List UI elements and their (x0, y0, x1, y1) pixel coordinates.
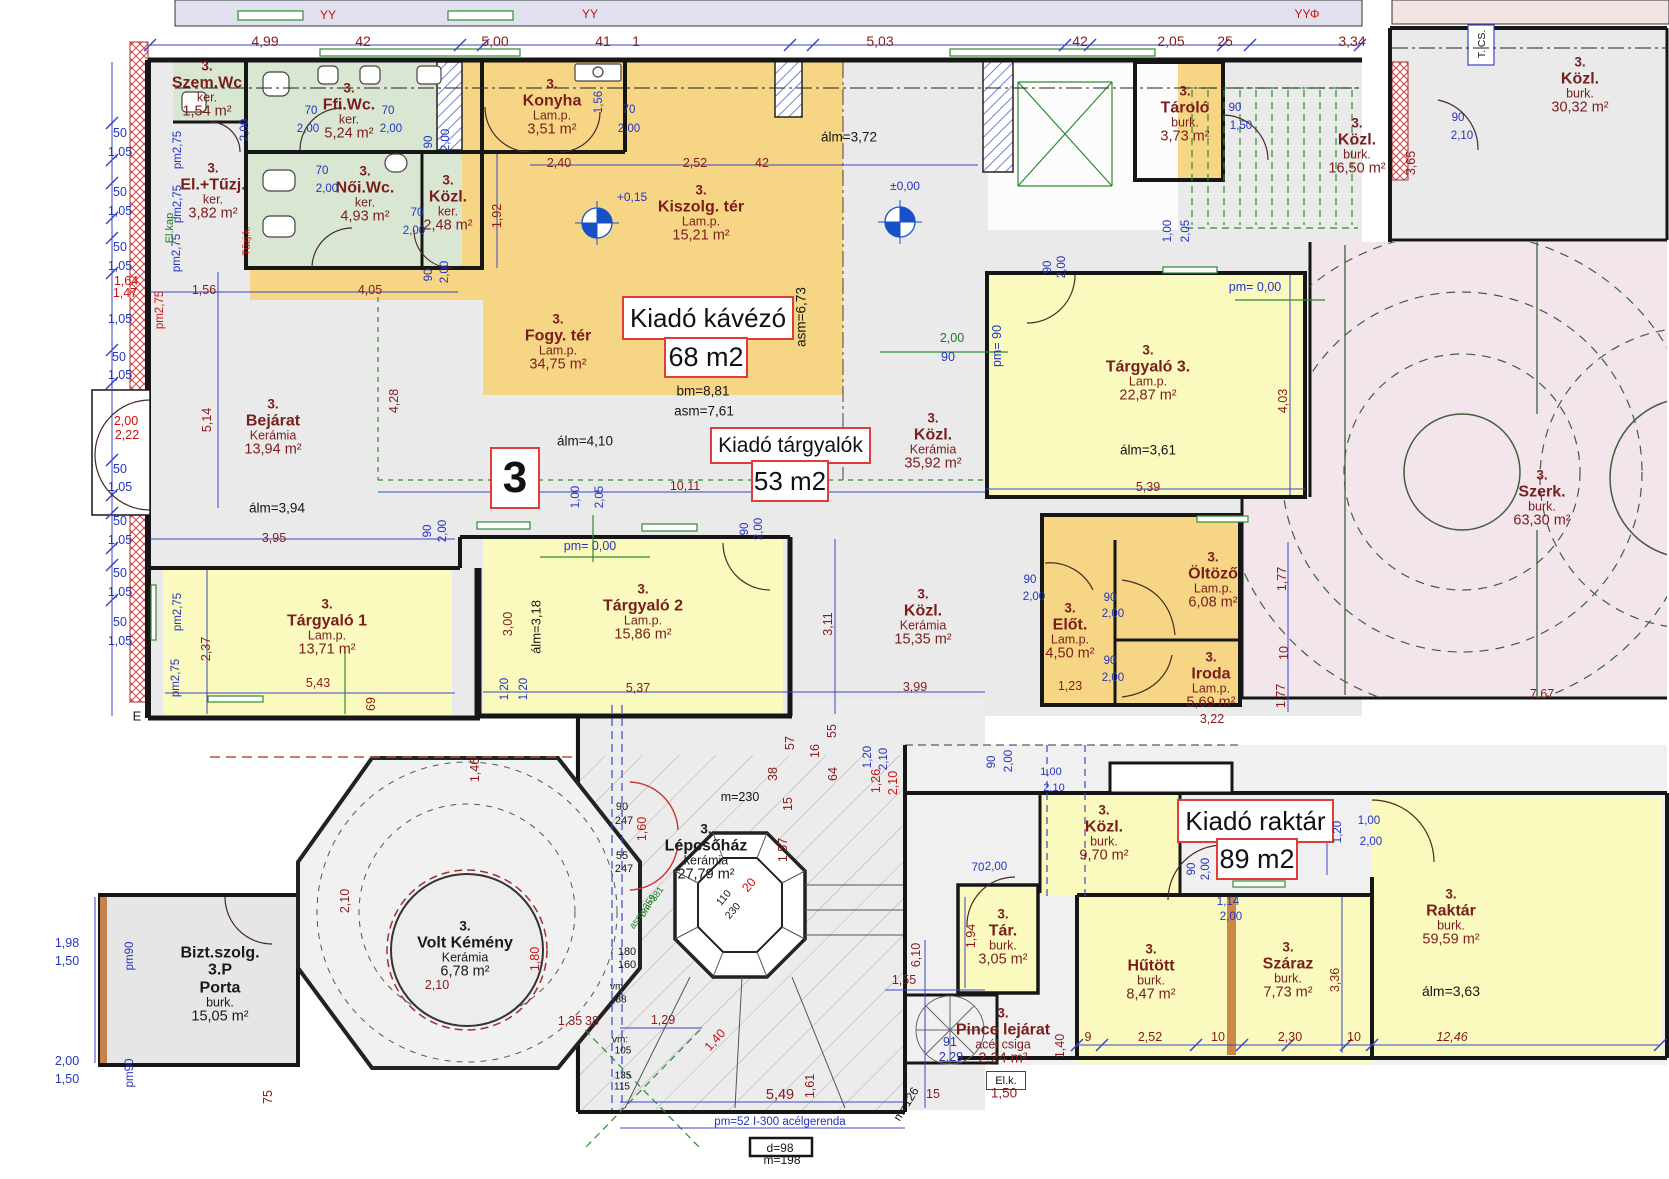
dim-label: 50 (113, 514, 127, 528)
dim-label: 50 (113, 240, 127, 254)
dim-label: 1,20 (862, 746, 874, 768)
room-label-kozl-1650: 3.Közl.burk.16,50 m² (1328, 117, 1385, 178)
dim-label: 2,00 (239, 119, 251, 141)
dim-label: 1,23 (1058, 679, 1082, 693)
room-label-szem-wc: 3.Szem.Wcker.1,54 m² (172, 60, 242, 121)
dim-label: 90 (986, 756, 998, 769)
dim-label: 2,05 (594, 486, 606, 508)
dim-label: 1,14 (1217, 896, 1239, 908)
dim-label: 2,52 (1138, 1030, 1162, 1044)
dim-label: +0,15 (617, 190, 647, 204)
dim-label: 6,10 (909, 943, 923, 967)
dim-label: 38 (585, 1014, 599, 1028)
dim-label: 90 (1024, 574, 1037, 586)
dim-label: 41 (595, 33, 611, 49)
room-label-szerk: 3.Szerk.burk.63,30 m² (1513, 469, 1570, 530)
dim-label: 3,11 (821, 612, 835, 635)
dim-label: El.kap (164, 213, 176, 244)
dim-label: 5,39 (1136, 480, 1160, 494)
dim-label: 3,36 (1328, 968, 1342, 992)
dim-label: álm=3,18 (529, 600, 544, 654)
room-label-hutott: 3.Hűtöttburk.8,47 m² (1126, 943, 1175, 1004)
dim-label: 2,00 (1220, 911, 1242, 923)
dim-label: 90 (739, 523, 751, 536)
dim-label: 4,03 (1276, 389, 1290, 413)
dim-label: pm=52 I-300 acélgerenda (714, 1116, 845, 1128)
dim-label: ±0,00 (890, 179, 920, 193)
dim-label: 1,35 (558, 1014, 582, 1028)
dim-label: 2,00 (1200, 858, 1212, 880)
dim-label: m=230 (721, 790, 760, 804)
dim-label: 4,28 (387, 389, 401, 413)
room-label-kozl-1535: 3.Közl.Kerámia15,35 m² (894, 588, 951, 649)
dim-label: 2,05 (1157, 33, 1184, 49)
dim-label: E (133, 709, 142, 724)
dim-label: 2,00 (1023, 591, 1045, 603)
dim-label: 1,61 (803, 1074, 817, 1098)
dim-label: 1,55 (892, 973, 916, 987)
dim-label: asm=6,73 (794, 287, 809, 347)
dim-label: 16 (808, 744, 822, 758)
dim-label: 70 (623, 104, 636, 116)
dim-label: 1,05 (108, 204, 132, 218)
dim-label: bm=8,81 (677, 384, 730, 399)
dim-label: 50 (113, 615, 127, 629)
room-label-targyalo-1: 3.Tárgyaló 1Lam.p.13,71 m² (287, 598, 367, 659)
dim-label: 2,40 (547, 156, 571, 170)
room-label-kozl-3032: 3.Közl.burk.30,32 m² (1551, 56, 1608, 117)
dim-label: álm=3,72 (821, 130, 877, 145)
dim-label: asm=359 (627, 893, 659, 932)
dim-label: ΥΥΦ (1295, 7, 1320, 21)
dim-label: 9 (1085, 1030, 1092, 1044)
dim-label: 1,00 (1162, 220, 1174, 242)
dim-label: 5,00 (481, 33, 508, 49)
dim-label: álm=3,94 (249, 501, 305, 516)
dim-label: 55 (616, 850, 628, 862)
dim-label: 1,46 (468, 758, 482, 782)
dim-label: álm=4,10 (557, 434, 613, 449)
room-label-bejarat: 3.BejáratKerámia13,94 m² (244, 398, 301, 459)
dim-label: 1,29 (651, 1013, 675, 1027)
room-label-raktar: 3.Raktárburk.59,59 m² (1422, 888, 1479, 949)
dim-label: 1,77 (1274, 684, 1288, 708)
dim-label: 25 (1217, 33, 1233, 49)
dim-label: 2,30 (1278, 1030, 1302, 1044)
dim-label: 2,00 (440, 129, 452, 151)
dim-label: 5,37 (626, 681, 650, 695)
dim-label: 75 (261, 1090, 275, 1104)
dim-label: 115 (614, 1082, 630, 1093)
dim-label: 90 (1042, 261, 1054, 274)
dim-label: asm=7,61 (674, 404, 734, 419)
dim-label: pm= 0,00 (564, 539, 616, 553)
dim-label: 42 (355, 33, 371, 49)
dim-label: 50 (112, 350, 126, 364)
dim-label: 2,10 (1043, 782, 1064, 794)
dim-label: 2,29 (939, 1050, 963, 1064)
dim-label: pm2,75 (172, 131, 184, 169)
dim-label: 2,00 (380, 123, 402, 135)
dim-label: 2,10 (1451, 130, 1473, 142)
room-label-porta: Bizt.szolg.3.PPortaburk.15,05 m² (180, 945, 259, 1026)
highlight-raktar-area: 89 m2 (1216, 838, 1298, 880)
dim-label: 2,00 (753, 518, 765, 540)
room-label-targyalo-3: 3.Tárgyaló 3.Lam.p.22,87 m² (1106, 344, 1190, 405)
dim-label: 1,20 (1332, 821, 1344, 843)
dim-label: 1,05 (108, 634, 132, 648)
dim-label: 42 (755, 156, 769, 170)
dim-label: 1,94 (964, 924, 978, 948)
dim-label: 3,99 (903, 680, 927, 694)
dim-label: 90 (423, 136, 435, 149)
dim-label: 2,00 (618, 123, 640, 135)
room-label-lepcsohaz: 3.Lépcsőházkerámia27,79 m² (665, 823, 748, 884)
highlight-kiado-targyalok: Kiadó tárgyalók (710, 427, 871, 464)
dim-label: 2,00 (985, 861, 1007, 873)
dim-label: 2,22 (115, 428, 139, 442)
dim-label: 160 (618, 959, 636, 971)
dim-label: 50 (113, 185, 127, 199)
dim-label: 1,50 (1230, 120, 1252, 132)
dim-label: 135 (615, 1071, 632, 1082)
dim-label: pm2,75 (172, 593, 184, 631)
dim-label: pm= 0,00 (1229, 280, 1281, 294)
dim-label: 1,80 (528, 947, 542, 971)
dim-label: 2,00 (403, 225, 425, 237)
highlight-targyalok-area: 53 m2 (751, 460, 829, 502)
dim-label: 10 (1277, 646, 1291, 660)
dim-label: 90 (1104, 592, 1117, 604)
dim-label: 70 (411, 207, 424, 219)
dim-label: 3,00 (501, 612, 515, 636)
floor-plan: 3.Szem.Wcker.1,54 m²3.Ffi.Wc.ker.5,24 m²… (0, 0, 1669, 1179)
dim-label: 2,00 (1102, 608, 1124, 620)
dim-label: ΥΥ (582, 7, 598, 21)
room-label-iroda: 3.IrodaLam.p.5,69 m² (1186, 651, 1235, 712)
dim-label: 64 (826, 767, 840, 781)
dim-label: 5,14 (200, 408, 214, 432)
dim-label: 2,37 (199, 637, 213, 661)
dim-label: 1,05 (108, 312, 132, 326)
dim-label: 55 (825, 724, 839, 738)
dim-label: 2,00 (1102, 672, 1124, 684)
dim-label: 1,05 (108, 533, 132, 547)
room-label-volt-kemeny: 3.Volt KéményKerámia6,78 m² (417, 920, 513, 981)
dim-label: 42 (1072, 33, 1088, 49)
dim-label: 2,00 (297, 123, 319, 135)
dim-label: 15 (781, 797, 795, 811)
dim-label: 2,00 (439, 261, 451, 283)
dim-label: 90 (423, 269, 435, 282)
dim-label: 2,00 (1360, 836, 1382, 848)
dim-label: 2,00 (114, 414, 138, 428)
dim-label: 2,00 (1003, 750, 1015, 772)
dim-label: 90 (1229, 102, 1242, 114)
dim-label: 2,00 (55, 1054, 79, 1068)
dim-label: 50 (113, 462, 127, 476)
dim-label: 10 (1211, 1030, 1225, 1044)
dim-label: 15 (926, 1087, 940, 1101)
dim-label: vm: (612, 1035, 628, 1046)
dim-label: m=198 (763, 1153, 800, 1167)
dim-label: 4,99 (251, 33, 278, 49)
dim-label: T. CS. (1476, 30, 1488, 59)
room-label-konyha: 3.KonyhaLam.p.3,51 m² (523, 78, 582, 139)
dim-label: 5,43 (306, 676, 330, 690)
dim-label: 1,47 (113, 286, 137, 300)
dim-label: 3,22 (1200, 712, 1224, 726)
dim-label: 1,00 (570, 486, 582, 508)
dim-label: 90 (941, 350, 955, 364)
room-label-noi-wc: 3.Női.Wc.ker.4,93 m² (336, 165, 395, 226)
dim-label: 70 (382, 105, 395, 117)
dim-label: 1,00 (1358, 815, 1380, 827)
dim-label: 1,56 (192, 283, 216, 297)
dim-label: 3,65 (1404, 151, 1418, 175)
dim-label: 1,50 (991, 1086, 1017, 1101)
dim-label: vm: (610, 982, 626, 993)
dim-label: 70 (316, 165, 329, 177)
dim-label: 1,56 (593, 91, 605, 113)
room-label-targyalo-2: 3.Tárgyaló 2Lam.p.15,86 m² (603, 583, 683, 644)
dim-label: 1,50 (55, 1072, 79, 1086)
dim-label: 247 (615, 815, 633, 827)
dim-label: m=126 (890, 1085, 921, 1124)
dim-label: 1,05 (108, 368, 132, 382)
room-label-tarolo: 3.Tárolóburk.3,73 m² (1160, 85, 1209, 146)
dim-label: 1,92 (490, 204, 504, 228)
dim-label: 1,98 (55, 936, 79, 950)
plan-labels: 3.Szem.Wcker.1,54 m²3.Ffi.Wc.ker.5,24 m²… (0, 0, 1669, 1179)
dim-label: 2,05 (1180, 220, 1192, 242)
dim-label: 1,05 (108, 480, 132, 494)
dim-label: ΥΥ (320, 8, 336, 22)
dim-label: 180 (618, 946, 636, 958)
dim-label: 90 (1186, 863, 1198, 876)
dim-label: 2,52 (683, 156, 707, 170)
dim-label: 1,60 (635, 817, 649, 841)
dim-label: 70 (972, 862, 985, 874)
dim-label: 90 (616, 801, 628, 813)
dim-label: 70 (305, 105, 318, 117)
dim-label: 1,00 (1040, 766, 1061, 778)
highlight-kavezo-area: 68 m2 (664, 337, 748, 378)
room-label-kozl-wc: 3.Közl.ker.2,48 m² (423, 174, 472, 235)
dim-label: pm2,75 (170, 659, 182, 697)
dim-label: 2,00 (437, 520, 449, 542)
dim-label: Tűzj.k. (242, 226, 253, 255)
dim-label: álm=3,63 (1422, 983, 1480, 999)
dim-label: 105 (615, 1046, 632, 1057)
dim-label: 12,46 (1436, 1030, 1467, 1044)
dim-label: 2,10 (886, 771, 900, 795)
room-label-oltozo: 3.ÖltözőLam.p.6,08 m² (1188, 551, 1238, 612)
dim-label: 1,57 (776, 838, 790, 862)
dim-label: 91 (943, 1035, 957, 1049)
dim-label: pm90 (124, 942, 136, 971)
dim-label: 1,77 (1275, 567, 1289, 591)
dim-label: 247 (615, 863, 633, 875)
highlight-kiado-raktar: Kiadó raktár (1177, 799, 1334, 843)
room-label-el-tuzj: 3.El.+Tűzj.ker.3,82 m² (180, 162, 245, 223)
dim-label: 90 (1452, 112, 1465, 124)
dim-label: 2,00 (1056, 256, 1068, 278)
dim-label: 1,05 (108, 259, 132, 273)
highlight-kiado-kavezo: Kiadó kávézó (622, 296, 794, 340)
dim-label: 3,95 (262, 531, 286, 545)
room-label-kiszolg-ter: 3.Kiszolg. térLam.p.15,21 m² (658, 184, 744, 245)
dim-label: 1 (632, 33, 640, 49)
dim-label: 1,20 (518, 678, 530, 700)
room-label-elot: 3.Előt.Lam.p.4,50 m² (1045, 602, 1094, 663)
room-label-kozl-3592: 3.Közl.Kerámia35,92 m² (904, 412, 961, 473)
dim-label: 69 (364, 697, 378, 711)
dim-label: 2,00 (940, 331, 964, 345)
dim-label: pm90 (124, 1059, 136, 1088)
room-label-ffi-wc: 3.Ffi.Wc.ker.5,24 m² (323, 82, 375, 143)
dim-label: 1,50 (55, 954, 79, 968)
dim-label: 1,40 (702, 1026, 729, 1053)
dim-label: 5,03 (866, 33, 893, 49)
dim-label: 50 (113, 126, 127, 140)
dim-label: 1,20 (499, 678, 511, 700)
dim-label: pm= 90 (990, 325, 1004, 367)
dim-label: 88 (615, 995, 626, 1006)
room-label-tar: 3.Tár.burk.3,05 m² (978, 908, 1027, 969)
dim-label: 2,10 (878, 748, 890, 770)
dim-label: 3,34 (1338, 33, 1365, 49)
dim-label: 57 (783, 736, 797, 750)
dim-label: 1,05 (108, 145, 132, 159)
dim-label: 10,11 (670, 479, 700, 493)
dim-label: 10 (1347, 1030, 1361, 1044)
dim-label: 5,49 (766, 1087, 794, 1103)
room-label-fogy-ter: 3.Fogy. térLam.p.34,75 m² (525, 313, 591, 374)
dim-label: 38 (766, 767, 780, 781)
dim-label: pm2,75 (154, 291, 166, 329)
room-label-szaraz: 3.Szárazburk.7,73 m² (1263, 941, 1314, 1002)
dim-label: 2,10 (338, 889, 352, 913)
dim-label: 90 (422, 525, 434, 538)
dim-label: 1,40 (1053, 1034, 1067, 1058)
room-label-pince-lejarat: 3.Pince lejáratacél csiga2,24 m² (956, 1007, 1050, 1068)
highlight-unit-number: 3 (490, 447, 540, 509)
room-label-kozl-970: 3.Közl.burk.9,70 m² (1079, 804, 1128, 865)
dim-label: álm=3,61 (1120, 443, 1176, 458)
dim-label: 2,10 (425, 978, 449, 992)
dim-label: 50 (113, 566, 127, 580)
dim-label: 4,05 (358, 283, 382, 297)
dim-label: 90 (1104, 655, 1117, 667)
dim-label: 1,26 (869, 769, 883, 793)
dim-label: 7,67 (1530, 687, 1554, 701)
dim-label: 2,00 (316, 183, 338, 195)
dim-label: 1,05 (108, 585, 132, 599)
